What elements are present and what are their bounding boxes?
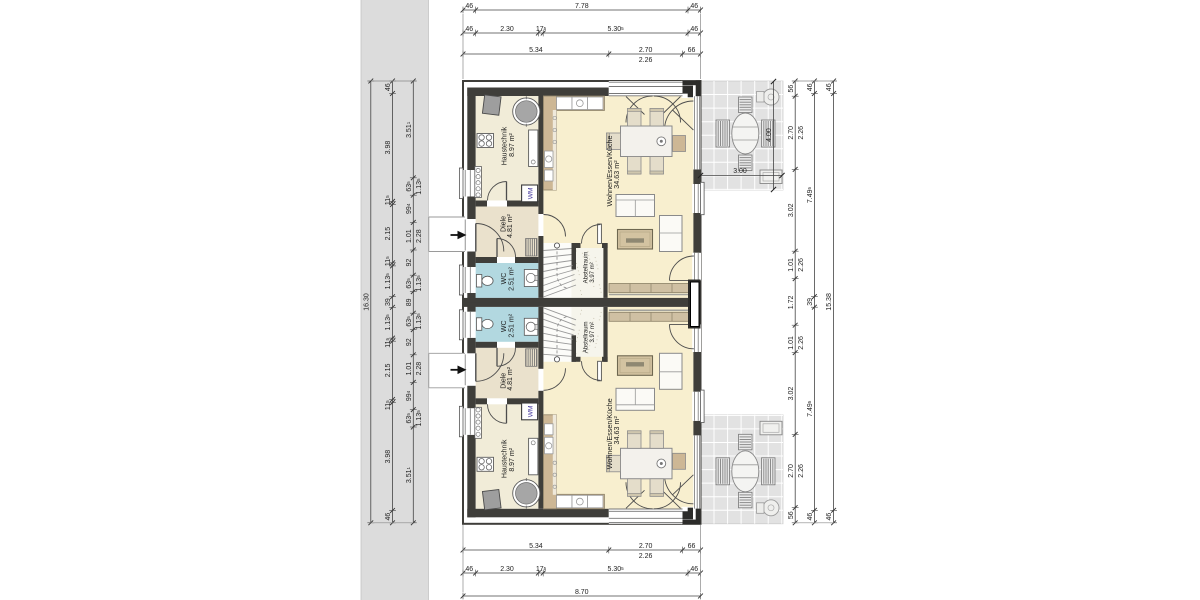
svg-text:Haustechnik: Haustechnik bbox=[502, 126, 509, 165]
svg-text:66: 66 bbox=[688, 47, 696, 54]
svg-text:4.00: 4.00 bbox=[766, 128, 773, 142]
svg-text:46: 46 bbox=[385, 513, 392, 521]
svg-text:2.70: 2.70 bbox=[788, 126, 795, 140]
svg-text:2.26: 2.26 bbox=[798, 464, 805, 478]
svg-text:56: 56 bbox=[788, 511, 795, 519]
svg-text:2.70: 2.70 bbox=[788, 464, 795, 478]
svg-text:5.34: 5.34 bbox=[529, 47, 543, 54]
svg-text:2.26: 2.26 bbox=[798, 336, 805, 350]
svg-text:39: 39 bbox=[807, 298, 814, 306]
svg-text:34.63 m²: 34.63 m² bbox=[612, 416, 621, 445]
svg-text:Abstellraum: Abstellraum bbox=[583, 321, 589, 353]
svg-text:1.01: 1.01 bbox=[406, 362, 413, 376]
svg-text:39: 39 bbox=[385, 298, 392, 306]
svg-text:3.00: 3.00 bbox=[733, 168, 747, 175]
svg-text:2.15: 2.15 bbox=[385, 363, 392, 377]
svg-text:3.02: 3.02 bbox=[788, 387, 795, 401]
svg-text:WM: WM bbox=[528, 406, 535, 418]
svg-text:Haustechnik: Haustechnik bbox=[502, 439, 509, 478]
svg-text:2.28: 2.28 bbox=[416, 362, 423, 376]
svg-text:46: 46 bbox=[826, 513, 833, 521]
svg-text:3.02: 3.02 bbox=[788, 203, 795, 217]
svg-text:2.30: 2.30 bbox=[500, 26, 514, 33]
svg-text:3.98: 3.98 bbox=[385, 450, 392, 464]
svg-text:WM: WM bbox=[528, 188, 535, 200]
svg-text:46: 46 bbox=[690, 26, 698, 33]
svg-text:46: 46 bbox=[465, 26, 473, 33]
svg-text:5.34: 5.34 bbox=[529, 543, 543, 550]
svg-text:92: 92 bbox=[406, 259, 413, 267]
svg-text:46: 46 bbox=[385, 83, 392, 91]
svg-text:1.01: 1.01 bbox=[788, 336, 795, 350]
svg-text:56: 56 bbox=[788, 85, 795, 93]
svg-text:89: 89 bbox=[406, 298, 413, 306]
svg-text:92: 92 bbox=[406, 338, 413, 346]
svg-text:Abstellraum: Abstellraum bbox=[583, 252, 589, 284]
svg-text:46: 46 bbox=[807, 513, 814, 521]
svg-text:1.72: 1.72 bbox=[788, 295, 795, 309]
svg-text:34.63 m²: 34.63 m² bbox=[612, 160, 621, 189]
svg-text:46: 46 bbox=[465, 3, 473, 10]
svg-text:3.97 m²: 3.97 m² bbox=[590, 322, 596, 342]
svg-text:46: 46 bbox=[807, 83, 814, 91]
svg-text:2.26: 2.26 bbox=[798, 126, 805, 140]
svg-text:WC: WC bbox=[501, 320, 508, 332]
svg-text:WC: WC bbox=[501, 273, 508, 285]
svg-text:4.81 m²: 4.81 m² bbox=[507, 366, 514, 390]
svg-text:2.26: 2.26 bbox=[639, 553, 653, 560]
svg-text:2.70: 2.70 bbox=[639, 47, 653, 54]
svg-text:2.51 m²: 2.51 m² bbox=[509, 313, 516, 337]
svg-text:2.26: 2.26 bbox=[639, 57, 653, 64]
svg-text:2.15: 2.15 bbox=[385, 227, 392, 241]
svg-text:8.97 m²: 8.97 m² bbox=[509, 447, 516, 471]
svg-text:2.51 m²: 2.51 m² bbox=[509, 266, 516, 290]
svg-text:7.78: 7.78 bbox=[575, 3, 589, 10]
svg-text:3.97 m²: 3.97 m² bbox=[590, 262, 596, 282]
svg-text:2.28: 2.28 bbox=[416, 229, 423, 243]
svg-text:15.38: 15.38 bbox=[826, 293, 833, 311]
svg-text:8.70: 8.70 bbox=[575, 589, 589, 596]
svg-text:66: 66 bbox=[688, 543, 696, 550]
svg-text:2.70: 2.70 bbox=[639, 543, 653, 550]
svg-text:8.97 m²: 8.97 m² bbox=[509, 132, 516, 156]
svg-text:3.98: 3.98 bbox=[385, 141, 392, 155]
svg-text:1.01: 1.01 bbox=[406, 229, 413, 243]
svg-text:46: 46 bbox=[690, 566, 698, 573]
svg-text:16.30: 16.30 bbox=[363, 293, 370, 311]
svg-text:4.81 m²: 4.81 m² bbox=[507, 213, 514, 237]
svg-text:2.30: 2.30 bbox=[500, 566, 514, 573]
svg-text:46: 46 bbox=[826, 83, 833, 91]
svg-text:2.26: 2.26 bbox=[798, 258, 805, 272]
svg-text:46: 46 bbox=[690, 3, 698, 10]
svg-text:46: 46 bbox=[465, 566, 473, 573]
svg-text:1.01: 1.01 bbox=[788, 258, 795, 272]
